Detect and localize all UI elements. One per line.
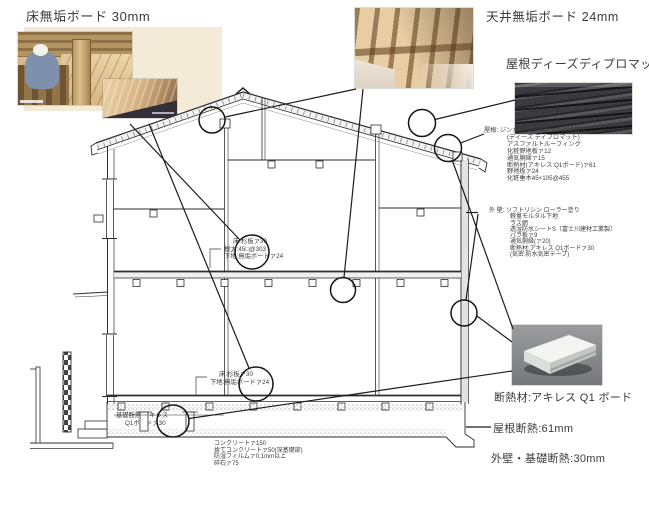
photo-light	[420, 64, 473, 88]
photo-floor-board-closeup	[103, 79, 177, 118]
dimension-staff	[63, 352, 71, 432]
floor-1f-joists	[118, 403, 433, 410]
annotation-line: 床:杉板ァ30	[210, 371, 269, 379]
floor-2f-band	[114, 272, 461, 279]
wall-spec-heading: 外 壁:	[489, 208, 504, 214]
annotation-line: 防湿フィルムァ0.1mm以上	[214, 454, 303, 461]
right-wall-top-plate	[453, 152, 462, 161]
window-2f	[104, 179, 116, 239]
roof-spec-line: 化粧垂木45×105@455	[484, 176, 596, 183]
label-wall-foundation-insulation: 外壁・基礎断熱:30mm	[491, 450, 605, 466]
bracket-2f-floor	[210, 249, 221, 268]
annotation-line: 根太:45□@303	[224, 246, 283, 254]
leader-wallspec-wallcircle	[466, 214, 478, 300]
awning-top	[73, 292, 108, 294]
annotation-line: 床:杉板ァ30	[224, 238, 283, 246]
ceiling-joist	[417, 209, 424, 216]
roof-spec-line: 断熱材(アキレス:Q1ボード)ァ61	[484, 163, 596, 170]
photo-highlight	[515, 83, 632, 87]
step-lower	[78, 429, 107, 438]
foundation-stipple-top	[108, 404, 464, 411]
annotation-concrete-spec: コンクリートァ150 捨てコンクリートァ50(深基礎部) 防湿フィルムァ0.1m…	[214, 441, 303, 467]
fence-post	[36, 367, 40, 443]
annotation-circles	[157, 107, 477, 437]
right-wall-insulation	[462, 160, 468, 402]
gutter-left	[91, 143, 98, 155]
awning-bottom	[75, 296, 108, 298]
label-insulation-board: 断熱材:アキレス Q1 ボード	[494, 389, 632, 405]
annotation-foundation-insulation: 基礎断熱:アキレス Q1ボードァ30	[116, 412, 168, 427]
window-1f	[104, 334, 116, 397]
foundation-stipple-bottom	[108, 429, 446, 436]
circle-right-wall	[451, 300, 477, 326]
photo-worker	[25, 51, 59, 89]
leader-ceilingphoto-ceiling	[344, 89, 363, 278]
annotation-line: 砕石ァ75	[214, 461, 303, 468]
label-roof-diplomat: 屋根ディーズディプロマット	[506, 55, 649, 72]
photo-caption-mark	[152, 112, 174, 114]
annotation-line: コンクリートァ150	[214, 441, 303, 448]
circle-1f-ceiling	[331, 278, 356, 303]
ceiling-joist	[150, 210, 157, 217]
photo-caption-mark	[20, 100, 43, 103]
annotation-line: 下地:無垢ボードァ24	[224, 253, 283, 261]
wall-vent	[94, 215, 103, 222]
leader-wallcircle-insulationphoto	[477, 316, 512, 342]
bracket-1f-floor	[196, 377, 207, 396]
leader-floorphoto-2f	[130, 124, 240, 240]
photo-ceiling-boards	[355, 8, 473, 88]
purlin-left	[220, 119, 230, 128]
ceiling-joist	[316, 161, 323, 168]
photo-wood-post	[72, 39, 91, 105]
circle-roof-right-lower	[435, 135, 462, 162]
leader-roofphoto-roof	[435, 100, 515, 120]
foundation-pier	[186, 412, 194, 431]
insulation-board-graphic	[512, 325, 602, 385]
roof-spec-heading: 屋根:	[484, 127, 498, 134]
leader-roofspec-circle	[461, 134, 485, 143]
diagram-canvas: 床無垢ボード 30mm 天井無垢ボード 24mm 屋根ディーズディプロマット 断…	[0, 0, 649, 507]
roof-spec-block: 屋根: ジンカリウム鋼板ァ0.39横葺き (ディーズ ディプロマット) アスファ…	[484, 128, 596, 183]
floor-2f-joists	[133, 280, 448, 287]
annotation-line: 下地:無垢ボードァ24	[210, 379, 269, 387]
ceiling-joist	[268, 161, 275, 168]
leader-ceilingphoto-roof	[225, 89, 356, 117]
label-roof-insulation: 屋根断熱:61mm	[493, 420, 573, 436]
leader-lines	[130, 89, 515, 427]
annotation-1f-floor: 床:杉板ァ30 下地:無垢ボードァ24	[210, 371, 269, 386]
circle-roof-right-upper	[409, 110, 436, 137]
label-floor-board: 床無垢ボード 30mm	[26, 6, 150, 25]
purlin-right	[371, 125, 381, 134]
annotation-line: Q1ボードァ30	[116, 420, 168, 428]
ridge-cap	[236, 88, 250, 94]
label-ceiling-board: 天井無垢ボード 24mm	[486, 6, 619, 25]
step-upper	[85, 421, 107, 429]
annotation-2f-floor: 床:杉板ァ30 根太:45□@303 下地:無垢ボードァ24	[224, 238, 283, 261]
roof-hatch-right	[243, 96, 480, 163]
photo-insulation-board	[512, 325, 602, 385]
wall-spec-line: (気密:防水気密テープ)	[489, 252, 616, 258]
wall-spec-block: 外 壁: ソフトリシン ローラー塗り 軽量モルタル下地 ラス網 透湿防水シートS…	[489, 208, 616, 258]
annotation-line: 基礎断熱:アキレス	[116, 412, 168, 420]
photo-worker-helmet	[33, 44, 48, 56]
